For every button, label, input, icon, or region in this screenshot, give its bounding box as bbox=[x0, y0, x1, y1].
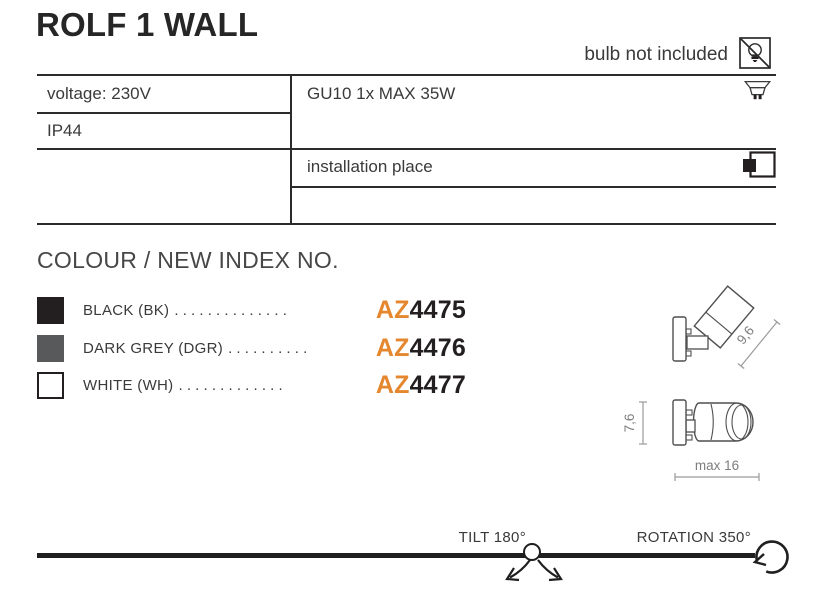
gu10-socket-icon bbox=[744, 80, 771, 106]
colour-swatch bbox=[37, 335, 64, 362]
index-code-number: 4476 bbox=[410, 334, 466, 362]
bulb-spec-cell: GU10 1x MAX 35W bbox=[307, 84, 455, 104]
technical-drawing: 9,6 7,6 max 16 bbox=[600, 270, 800, 493]
index-code-prefix: AZ bbox=[376, 296, 410, 324]
rotation-label: ROTATION 350° bbox=[598, 529, 751, 546]
voltage-cell: voltage: 230V bbox=[47, 84, 151, 104]
installation-cell: installation place bbox=[307, 157, 433, 177]
colour-swatch bbox=[37, 372, 64, 399]
table-divider-installation bbox=[290, 186, 776, 188]
colour-row: WHITE (WH) . . . . . . . . . . . . . AZ4… bbox=[37, 367, 466, 405]
bulb-crossed-icon bbox=[739, 37, 771, 74]
dots-leader: . . . . . . . . . . . . . bbox=[178, 377, 370, 394]
table-border-top bbox=[37, 74, 776, 76]
wall-mount-icon bbox=[742, 151, 776, 184]
colour-label: WHITE (WH) bbox=[83, 377, 173, 394]
colour-label: DARK GREY (DGR) bbox=[83, 340, 223, 357]
colour-row: BLACK (BK) . . . . . . . . . . . . . . A… bbox=[37, 292, 466, 330]
colour-rows: BLACK (BK) . . . . . . . . . . . . . . A… bbox=[37, 292, 466, 405]
rotation-arrow-icon bbox=[750, 539, 792, 586]
page-title: ROLF 1 WALL bbox=[36, 6, 258, 44]
tilt-label: TILT 180° bbox=[436, 529, 526, 546]
dots-leader: . . . . . . . . . . . . . . bbox=[174, 302, 370, 319]
baseline-bar bbox=[37, 553, 755, 558]
tilt-arrows-icon bbox=[496, 559, 572, 592]
index-code: AZ4476 bbox=[376, 334, 466, 363]
index-code: AZ4477 bbox=[376, 371, 466, 400]
table-divider-middle bbox=[37, 148, 776, 150]
index-code-number: 4477 bbox=[410, 371, 466, 399]
index-code-prefix: AZ bbox=[376, 371, 410, 399]
index-code-number: 4475 bbox=[410, 296, 466, 324]
bulb-note-text: bulb not included bbox=[440, 44, 728, 66]
ip-rating-cell: IP44 bbox=[47, 121, 82, 141]
table-divider-voltage bbox=[37, 112, 290, 114]
dim-width-label: max 16 bbox=[695, 458, 739, 473]
index-code-prefix: AZ bbox=[376, 334, 410, 362]
table-column-divider bbox=[290, 74, 292, 224]
index-code: AZ4475 bbox=[376, 296, 466, 325]
colour-swatch bbox=[37, 297, 64, 324]
dim-height-label: 7,6 bbox=[622, 414, 637, 433]
colour-label: BLACK (BK) bbox=[83, 302, 169, 319]
colour-section-heading: COLOUR / NEW INDEX NO. bbox=[37, 247, 339, 274]
table-border-bottom bbox=[37, 223, 776, 225]
colour-row: DARK GREY (DGR) . . . . . . . . . . AZ44… bbox=[37, 330, 466, 368]
dots-leader: . . . . . . . . . . bbox=[228, 340, 371, 357]
spec-sheet: ROLF 1 WALL bulb not included voltage: 2… bbox=[0, 0, 824, 598]
